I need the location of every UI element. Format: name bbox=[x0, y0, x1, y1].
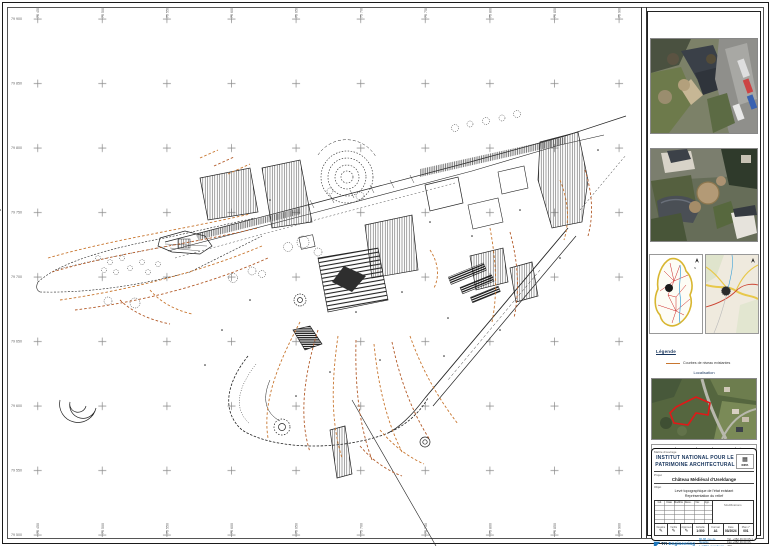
object-title: Levé topographique de l'état existant Re… bbox=[654, 489, 754, 498]
format-field: Format A1 bbox=[709, 524, 724, 535]
svg-text:79 750: 79 750 bbox=[11, 211, 22, 215]
title-block: Maître d'ouvrage INSTITUT NATIONAL POUR … bbox=[651, 448, 757, 541]
map-local-roads bbox=[705, 254, 759, 334]
engineering-firm-row: ◤ TR Engineering Ingénieurs-conseils en … bbox=[654, 538, 754, 546]
svg-text:79 600: 79 600 bbox=[11, 404, 22, 408]
svg-text:75 550: 75 550 bbox=[166, 523, 170, 534]
signature-cell-drawn: Dessiné ✎ bbox=[655, 524, 668, 535]
legend-item-contours: Courbes de niveau existantes bbox=[666, 361, 756, 365]
project-title: Château Médiéval d'Useldange bbox=[654, 477, 754, 482]
firm-contact: Tél. +352 49 00 65-1 Fax +352 49 00 65-2… bbox=[727, 538, 754, 546]
svg-text:75 700: 75 700 bbox=[359, 7, 363, 18]
revision-note: Modifications bbox=[713, 501, 753, 523]
revision-table: Ind.Date ModificationDess. Vér.App. Modi… bbox=[654, 500, 754, 524]
svg-text:79 800: 79 800 bbox=[11, 146, 22, 150]
svg-text:79 900: 79 900 bbox=[11, 17, 22, 21]
legend-title: Légende bbox=[656, 349, 676, 354]
svg-text:75 600: 75 600 bbox=[230, 523, 234, 534]
svg-text:79 650: 79 650 bbox=[11, 340, 22, 344]
drawing-sheet: 79 90079 85079 80079 75079 70079 65079 6… bbox=[0, 0, 771, 546]
svg-text:75 700: 75 700 bbox=[359, 523, 363, 534]
svg-text:79 700: 79 700 bbox=[11, 275, 22, 279]
svg-text:75 850: 75 850 bbox=[553, 7, 557, 18]
svg-text:75 650: 75 650 bbox=[295, 523, 299, 534]
scale-field: Echelle 1:500 bbox=[693, 524, 708, 535]
aerial-photo-site-boundary bbox=[651, 378, 757, 440]
svg-text:79 550: 79 550 bbox=[11, 469, 22, 473]
contour-line-swatch bbox=[666, 363, 680, 364]
firm-address: 86-88, rue de l'Égalité L-1456 Luxembour… bbox=[699, 538, 724, 546]
aerial-photo-castle-street bbox=[650, 38, 758, 134]
tr-engineering-logo: ◤ TR Engineering Ingénieurs-conseils en … bbox=[654, 541, 696, 546]
svg-text:75 900: 75 900 bbox=[618, 523, 622, 534]
location-maps-row: N bbox=[648, 254, 760, 334]
svg-text:75 450: 75 450 bbox=[36, 523, 40, 534]
svg-text:75 500: 75 500 bbox=[101, 523, 105, 534]
client-row: INSTITUT NATIONAL POUR LE PATRIMOINE ARC… bbox=[654, 454, 754, 469]
svg-text:75 800: 75 800 bbox=[489, 7, 493, 18]
svg-text:75 500: 75 500 bbox=[101, 7, 105, 18]
revision-headers: Ind.Date ModificationDess. Vér.App. bbox=[655, 501, 712, 504]
sidebar-panel: N Légende Courbes de niveau exista bbox=[647, 11, 761, 536]
aerial-photo-castle-towers bbox=[650, 148, 758, 242]
tr-logo-icon: ◤ bbox=[654, 541, 660, 546]
signature-row: Dessiné ✎ Vérifié ✎ Approuvé ✎ Echelle 1… bbox=[654, 524, 754, 536]
legend-block: Légende Courbes de niveau existantes bbox=[656, 340, 756, 365]
map-luxembourg-roads: N bbox=[649, 254, 703, 334]
signature-cell-checked: Vérifié ✎ bbox=[668, 524, 681, 535]
plan-number-field: Plan n° 001 bbox=[739, 524, 753, 535]
svg-text:75 750: 75 750 bbox=[424, 7, 428, 18]
pen-icon: ✎ bbox=[659, 529, 663, 533]
pen-icon: ✎ bbox=[685, 529, 689, 533]
svg-text:75 450: 75 450 bbox=[36, 7, 40, 18]
svg-text:75 850: 75 850 bbox=[553, 523, 557, 534]
revision-grid: Ind.Date ModificationDess. Vér.App. bbox=[655, 501, 713, 523]
svg-text:79 850: 79 850 bbox=[11, 82, 22, 86]
svg-text:75 600: 75 600 bbox=[230, 7, 234, 18]
date-field: Date 03/2024 bbox=[724, 524, 739, 535]
svg-text:79 500: 79 500 bbox=[11, 533, 22, 537]
site-plan-area: 79 90079 85079 80079 75079 70079 65079 6… bbox=[0, 0, 646, 546]
localisation-label: Localisation bbox=[648, 370, 760, 375]
svg-text:75 800: 75 800 bbox=[489, 523, 493, 534]
client-logo: ▦ INPA bbox=[736, 454, 754, 469]
svg-text:75 900: 75 900 bbox=[618, 7, 622, 18]
svg-text:75 650: 75 650 bbox=[295, 7, 299, 18]
pen-icon: ✎ bbox=[672, 529, 676, 533]
legend-item-label: Courbes de niveau existantes bbox=[683, 361, 730, 365]
svg-text:N: N bbox=[694, 266, 696, 270]
client-name: INSTITUT NATIONAL POUR LE PATRIMOINE ARC… bbox=[654, 455, 736, 468]
signature-cell-approved: Approuvé ✎ bbox=[681, 524, 694, 535]
site-plan-drawing: 79 90079 85079 80079 75079 70079 65079 6… bbox=[0, 0, 646, 546]
svg-text:75 550: 75 550 bbox=[166, 7, 170, 18]
